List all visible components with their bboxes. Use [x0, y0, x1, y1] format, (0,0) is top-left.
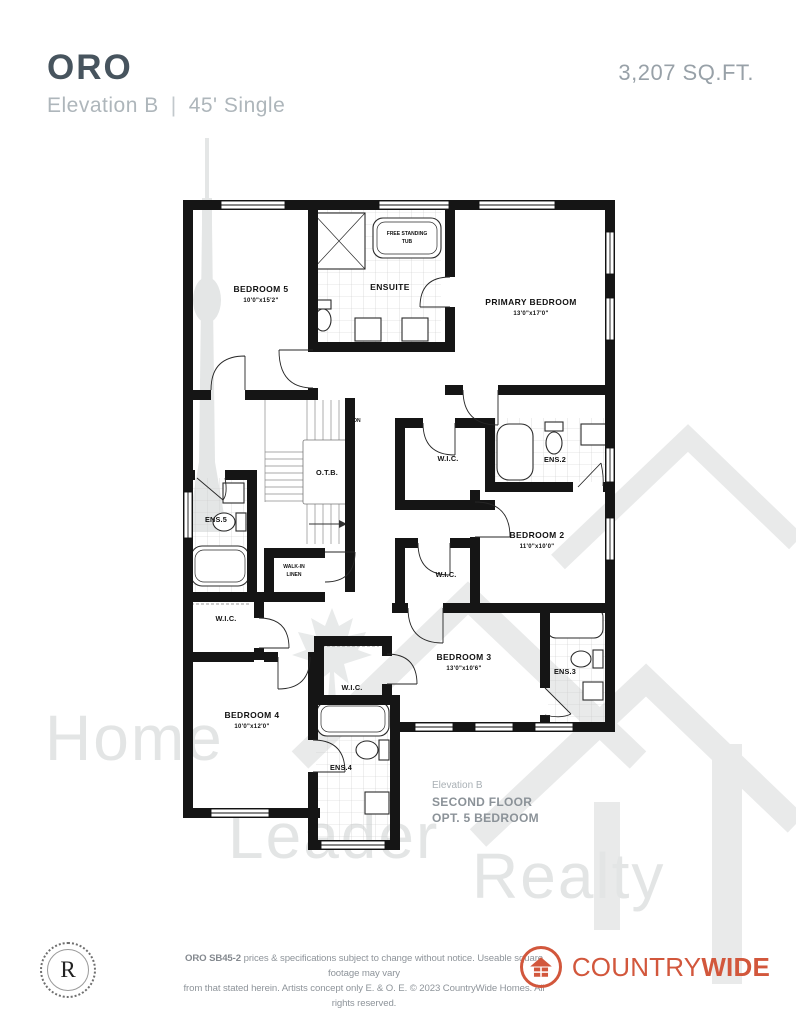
disclaimer-line2: from that stated herein. Artists concept… [183, 983, 544, 1009]
bedroom4-dims: 10'0"x12'0" [234, 724, 269, 730]
open-to-below-label: O.T.B. [316, 468, 338, 477]
stamp-letter: R [47, 949, 89, 991]
plan-annotation: Elevation B SECOND FLOOR OPT. 5 BEDROOM [432, 780, 539, 825]
bedroom2-label: BEDROOM 2 [509, 530, 564, 540]
registered-stamp: R [40, 942, 96, 998]
disclaimer-text: ORO SB45-2 prices & specifications subje… [180, 952, 548, 1011]
bedroom5-label: BEDROOM 5 [233, 284, 288, 294]
wic-bedroom2-label: W.I.C. [435, 570, 456, 579]
floorplan: BEDROOM 5 10'0"x15'2" ENSUITE FREE STAND… [183, 200, 623, 860]
countrywide-logo: COUNTRYWIDE [520, 946, 770, 988]
lot-width-label: 45' Single [189, 94, 286, 117]
ens4-label: ENS.4 [330, 763, 353, 772]
countrywide-wordmark: COUNTRYWIDE [572, 952, 770, 983]
wic-bedroom4-label: W.I.C. [215, 614, 236, 623]
annotation-floor: SECOND FLOOR [432, 795, 532, 809]
footer: R ORO SB45-2 prices & specifications sub… [0, 938, 796, 1008]
bedroom3-label: BEDROOM 3 [436, 652, 491, 662]
bedroom4-label: BEDROOM 4 [224, 710, 279, 720]
square-footage: 3,207 SQ.FT. [618, 60, 754, 86]
bedroom3-dims: 13'0"x10'6" [446, 666, 481, 672]
annotation-elevation: Elevation B [432, 780, 483, 791]
walkin-linen-line2: LINEN [287, 572, 302, 578]
model-subtitle: Elevation B|45' Single [47, 94, 285, 118]
ensuite-label: ENSUITE [370, 282, 410, 292]
wic-bedroom3-label: W.I.C. [341, 683, 362, 692]
disclaimer-line1: prices & specifications subject to chang… [241, 953, 543, 979]
bedroom5-dims: 10'0"x15'2" [243, 298, 278, 304]
disclaimer-model-code: ORO SB45-2 [185, 953, 241, 964]
elevation-label: Elevation B [47, 94, 159, 117]
countrywide-house-icon [520, 946, 562, 988]
ens2-label: ENS.2 [544, 455, 566, 464]
primary-bedroom-dims: 13'0"x17'0" [513, 311, 548, 317]
subtitle-divider: | [171, 94, 177, 117]
stairs-dn-label: DN [353, 418, 361, 424]
brochure-page: Home Leader Realty ORO Elevation B|45' S… [0, 0, 796, 1030]
brand-wide: WIDE [701, 952, 770, 982]
walkin-linen-line1: WALK-IN [283, 564, 305, 570]
primary-bedroom-label: PRIMARY BEDROOM [485, 297, 576, 307]
bedroom2-dims: 11'0"x10'0" [520, 544, 555, 550]
page-title: ORO [47, 48, 133, 88]
wic-primary-label: W.I.C. [437, 454, 458, 463]
ens3-label: ENS.3 [554, 667, 576, 676]
tub-label-line1: FREE STANDING [387, 231, 428, 237]
brand-country: COUNTRY [572, 952, 701, 982]
tub-label-line2: TUB [402, 239, 413, 245]
ens5-label: ENS.5 [205, 515, 227, 524]
annotation-option: OPT. 5 BEDROOM [432, 811, 539, 825]
